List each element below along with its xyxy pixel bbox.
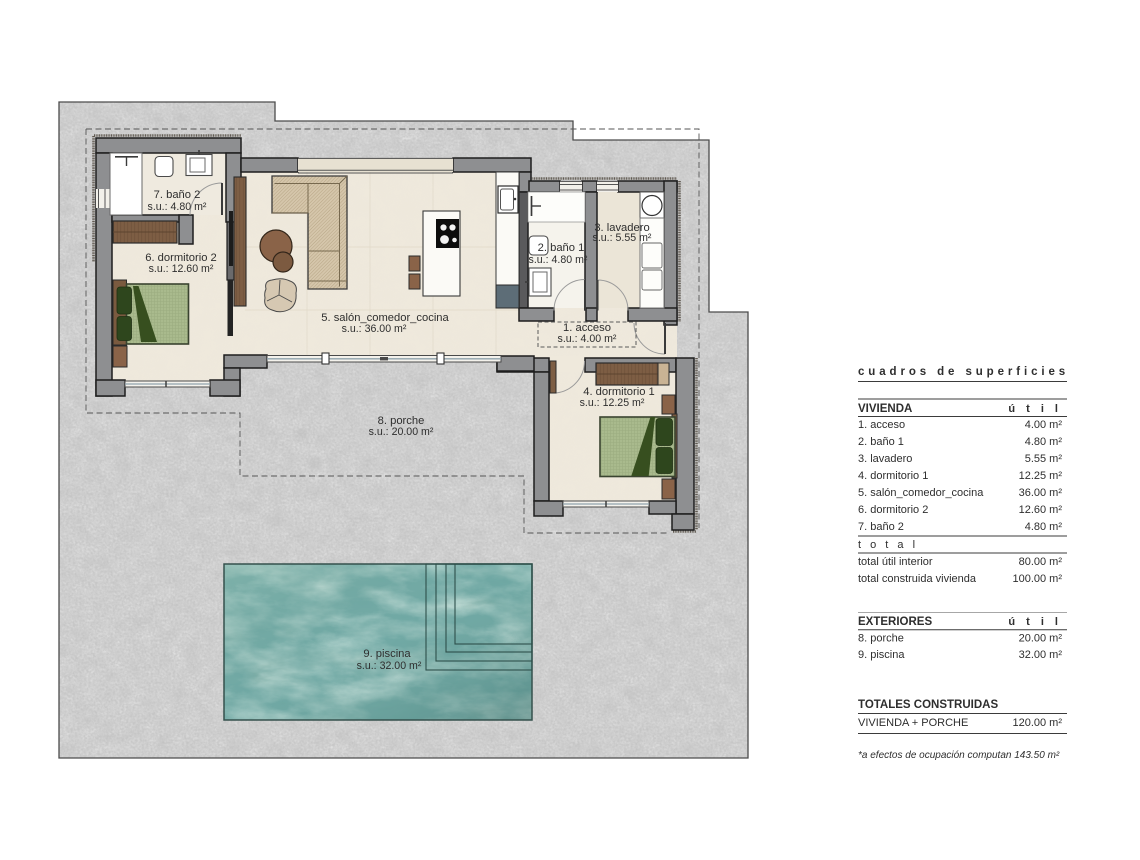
svg-text:EXTERIORES: EXTERIORES xyxy=(858,616,932,628)
svg-text:7. baño 2: 7. baño 2 xyxy=(858,521,904,533)
svg-text:5.55 m²: 5.55 m² xyxy=(1025,453,1063,465)
svg-text:cuadros de superficies: cuadros de superficies xyxy=(858,366,1069,378)
svg-text:9. piscina: 9. piscina xyxy=(858,649,905,661)
svg-text:120.00 m²: 120.00 m² xyxy=(1012,717,1062,729)
svg-text:6. dormitorio 2: 6. dormitorio 2 xyxy=(858,504,928,516)
svg-text:12.60 m²: 12.60 m² xyxy=(1019,504,1063,516)
svg-text:4.80 m²: 4.80 m² xyxy=(1025,521,1063,533)
svg-text:VIVIENDA: VIVIENDA xyxy=(858,403,912,415)
svg-text:total construida vivienda: total construida vivienda xyxy=(858,573,977,585)
svg-text:t o t a l: t o t a l xyxy=(858,539,918,551)
svg-text:1. acceso: 1. acceso xyxy=(858,419,905,431)
svg-text:TOTALES CONSTRUIDAS: TOTALES CONSTRUIDAS xyxy=(858,699,998,711)
svg-text:ú t i l: ú t i l xyxy=(1008,403,1062,415)
svg-text:36.00 m²: 36.00 m² xyxy=(1019,487,1063,499)
svg-text:s.u.: 5.55 m²: s.u.: 5.55 m² xyxy=(593,232,652,244)
svg-text:5. salón_comedor_cocina: 5. salón_comedor_cocina xyxy=(858,487,984,499)
svg-text:4.00 m²: 4.00 m² xyxy=(1025,419,1063,431)
svg-text:total útil interior: total útil interior xyxy=(858,556,933,568)
svg-text:80.00 m²: 80.00 m² xyxy=(1019,556,1063,568)
svg-text:8. porche: 8. porche xyxy=(858,632,904,644)
svg-text:12.25 m²: 12.25 m² xyxy=(1019,470,1063,482)
svg-text:100.00 m²: 100.00 m² xyxy=(1012,573,1062,585)
svg-text:2. baño 1: 2. baño 1 xyxy=(858,436,904,448)
svg-text:32.00 m²: 32.00 m² xyxy=(1019,649,1063,661)
svg-text:4.80 m²: 4.80 m² xyxy=(1025,436,1063,448)
svg-text:20.00 m²: 20.00 m² xyxy=(1019,632,1063,644)
svg-text:9. piscina: 9. piscina xyxy=(363,648,411,660)
svg-text:ú t i l: ú t i l xyxy=(1008,616,1062,628)
svg-text:*a efectos de ocupación comput: *a efectos de ocupación computan 143.50 … xyxy=(858,750,1060,761)
svg-text:s.u.: 12.25 m²: s.u.: 12.25 m² xyxy=(580,397,645,409)
svg-text:s.u.: 4.80 m²: s.u.: 4.80 m² xyxy=(529,254,588,266)
svg-text:4. dormitorio 1: 4. dormitorio 1 xyxy=(858,470,928,482)
svg-text:3. lavadero: 3. lavadero xyxy=(858,453,912,465)
svg-text:s.u.: 32.00 m²: s.u.: 32.00 m² xyxy=(357,660,422,672)
svg-text:s.u.: 20.00 m²: s.u.: 20.00 m² xyxy=(369,426,434,438)
svg-text:s.u.: 4.80 m²: s.u.: 4.80 m² xyxy=(148,201,207,213)
svg-text:s.u.: 4.00 m²: s.u.: 4.00 m² xyxy=(558,333,617,345)
svg-text:s.u.: 12.60 m²: s.u.: 12.60 m² xyxy=(149,263,214,275)
svg-text:s.u.: 36.00 m²: s.u.: 36.00 m² xyxy=(342,323,407,335)
svg-text:7. baño 2: 7. baño 2 xyxy=(154,189,201,201)
svg-text:2. baño 1: 2. baño 1 xyxy=(538,242,585,254)
svg-text:VIVIENDA + PORCHE: VIVIENDA + PORCHE xyxy=(858,717,968,729)
